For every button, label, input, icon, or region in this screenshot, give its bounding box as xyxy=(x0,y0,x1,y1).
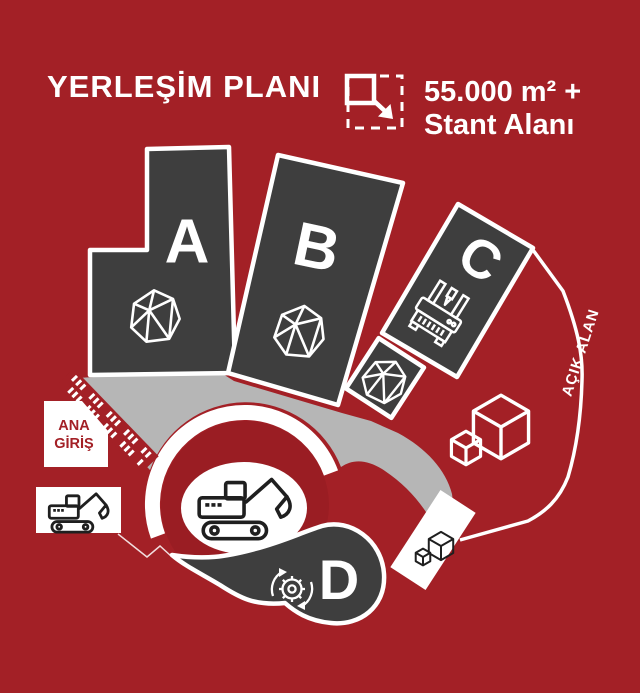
main-entrance-label-line1: ANA xyxy=(58,418,90,434)
site-plan-map: YERLEŞİM PLANI 55.000 m² + Stant Alanı A… xyxy=(0,0,640,688)
legend-area-label: Stant Alanı xyxy=(424,109,574,141)
legend-area-value: 55.000 m² + xyxy=(424,76,581,108)
left-stand xyxy=(36,487,121,533)
site-plan: YERLEŞİM PLANI 55.000 m² + Stant Alanı A… xyxy=(0,0,640,688)
hall-a-label: A xyxy=(165,207,210,276)
main-entrance-label-line2: GİRİŞ xyxy=(54,435,94,452)
page-title: YERLEŞİM PLANI xyxy=(47,69,321,104)
hall-d-label: D xyxy=(319,548,359,611)
